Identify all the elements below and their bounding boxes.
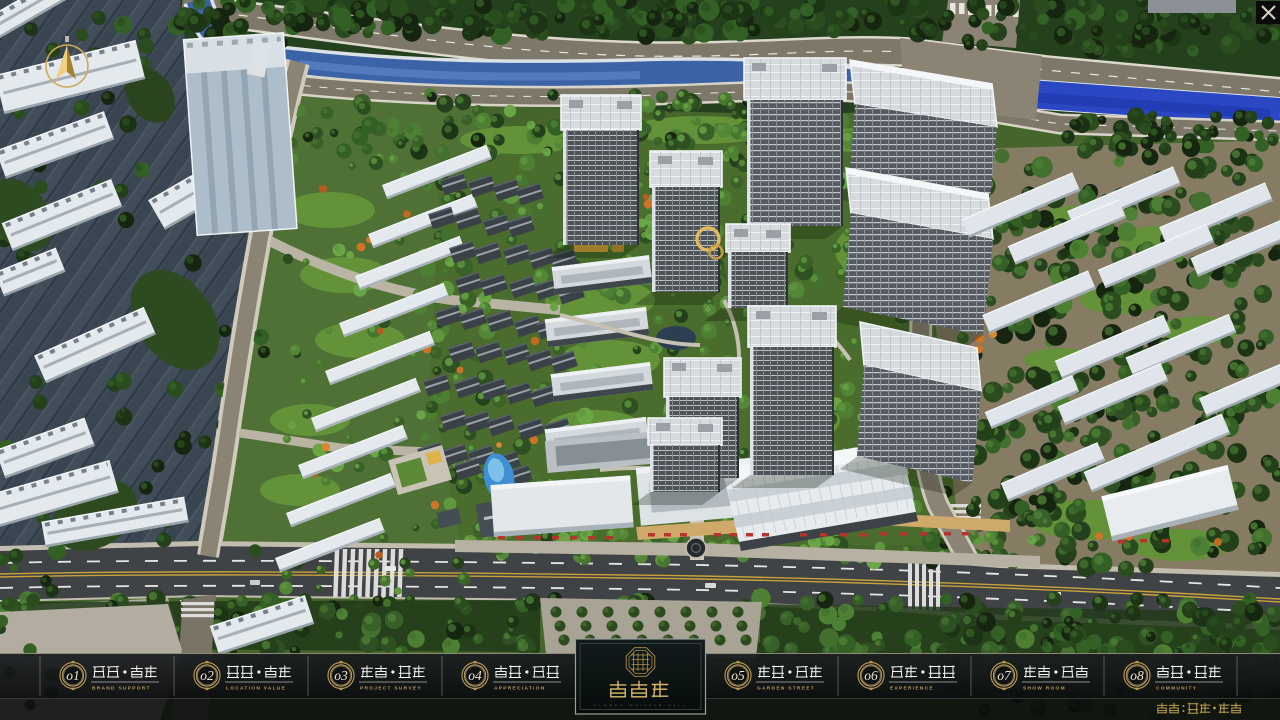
svg-text:o7: o7 xyxy=(997,668,1012,683)
svg-text:o2: o2 xyxy=(200,668,214,683)
svg-text:o6: o6 xyxy=(864,668,878,683)
svg-text:EXPERIENCE: EXPERIENCE xyxy=(890,686,934,692)
svg-text:o5: o5 xyxy=(731,668,745,683)
svg-text:SHOW ROOM: SHOW ROOM xyxy=(1023,686,1066,692)
svg-text:APPRECIATION: APPRECIATION xyxy=(494,686,546,692)
svg-text:o4: o4 xyxy=(468,668,482,683)
svg-text:BRAND SUPPORT: BRAND SUPPORT xyxy=(92,686,151,692)
svg-text:o1: o1 xyxy=(66,668,80,683)
svg-text:o3: o3 xyxy=(334,668,348,683)
svg-text:GARDEN STREET: GARDEN STREET xyxy=(757,686,815,692)
svg-text:o8: o8 xyxy=(1130,668,1144,683)
svg-text:COMMUNITY: COMMUNITY xyxy=(1156,686,1197,692)
svg-text:LOCATION VALUE: LOCATION VALUE xyxy=(226,686,286,692)
svg-text:PROJECT SURVEY: PROJECT SURVEY xyxy=(360,686,422,692)
svg-text:F L O W E R · W H I S P E R ·: F L O W E R · W H I S P E R · H A L L xyxy=(595,704,686,708)
